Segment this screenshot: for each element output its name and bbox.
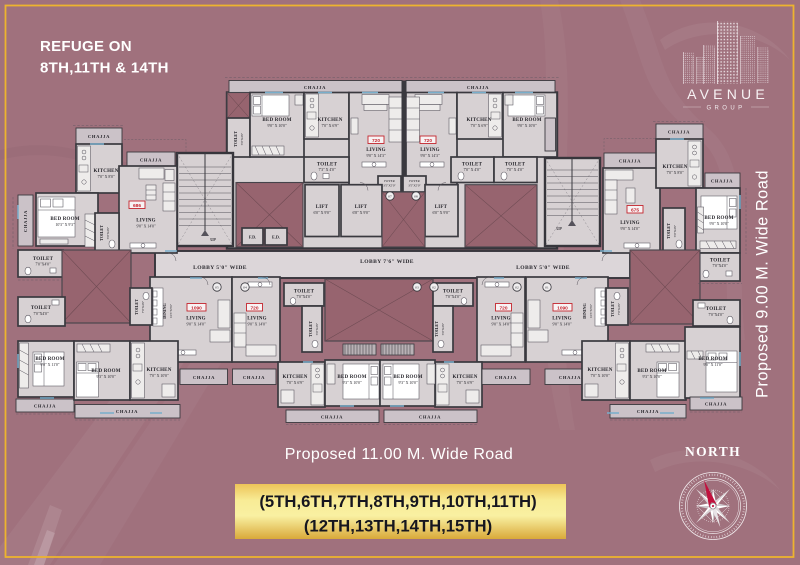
svg-text:LIVING: LIVING [136,219,156,224]
svg-text:9'0" X 14'3": 9'0" X 14'3" [366,154,385,158]
svg-text:7'0"X4'0": 7'0"X4'0" [35,263,51,267]
svg-text:9'0" X 14'0": 9'0" X 14'0" [491,323,510,327]
svg-text:BED ROOM: BED ROOM [512,118,541,123]
svg-text:686: 686 [133,203,141,209]
svg-text:02: 02 [515,285,519,289]
svg-text:TOILET: TOILET [134,299,139,315]
svg-text:01: 01 [545,285,549,289]
svg-text:7'0" X 4'0": 7'0" X 4'0" [506,168,524,172]
svg-text:LOBBY 5'0" WIDE: LOBBY 5'0" WIDE [516,265,570,271]
svg-text:TOILET: TOILET [610,301,615,317]
svg-text:720: 720 [499,306,507,312]
svg-text:NORTH: NORTH [685,444,741,459]
svg-text:TOILET: TOILET [294,290,315,295]
svg-text:7'0" X 8'0": 7'0" X 8'0" [666,171,684,175]
svg-text:BED ROOM: BED ROOM [637,369,666,374]
svg-text:LIVING: LIVING [620,221,640,226]
svg-text:LIVING: LIVING [420,148,440,153]
svg-text:6'0"X4'0": 6'0"X4'0" [441,322,445,335]
svg-text:7'0"X4'0": 7'0"X4'0" [445,295,461,299]
svg-text:CHAJJA: CHAJJA [321,415,343,420]
svg-text:7'0" X 6'9": 7'0" X 6'9" [286,381,304,385]
svg-text:E.D.: E.D. [272,235,280,240]
svg-text:1090: 1090 [191,306,202,312]
svg-text:1090: 1090 [557,306,568,312]
svg-text:BED ROOM: BED ROOM [393,375,422,380]
svg-text:8TH,11TH & 14TH: 8TH,11TH & 14TH [40,60,169,77]
svg-text:F.D.: F.D. [249,235,256,240]
svg-text:CHAJJA: CHAJJA [193,375,215,380]
svg-text:7'0" X 8'0": 7'0" X 8'0" [97,175,115,179]
svg-text:TOILET: TOILET [317,163,338,168]
svg-text:BED ROOM: BED ROOM [337,375,366,380]
svg-text:7'0" X 6'9": 7'0" X 6'9" [321,124,339,128]
svg-text:9'0" X 14'0": 9'0" X 14'0" [552,323,571,327]
svg-text:7'3" X 4'0": 7'3" X 4'0" [318,168,336,172]
svg-text:TOILET: TOILET [505,163,526,168]
svg-text:9'0" X 14'0": 9'0" X 14'0" [247,323,266,327]
svg-text:9'0" X 14'3": 9'0" X 14'3" [420,154,439,158]
svg-text:CHAJJA: CHAJJA [705,402,727,407]
svg-text:10'3"X5'0": 10'3"X5'0" [169,303,173,318]
svg-text:6'0" X 9'0": 6'0" X 9'0" [432,211,450,215]
svg-text:CHAJJA: CHAJJA [559,375,581,380]
svg-text:05: 05 [215,285,219,289]
svg-text:Proposed 9.00 M. Wide Road: Proposed 9.00 M. Wide Road [754,170,772,398]
svg-text:TOILET: TOILET [99,225,104,241]
svg-text:KITCHEN: KITCHEN [662,165,687,170]
svg-text:6'0"X4'0": 6'0"X4'0" [673,224,677,237]
svg-text:3'5"X5'0": 3'5"X5'0" [408,184,421,188]
svg-text:TOILET: TOILET [462,163,483,168]
svg-text:6'0"X4'0": 6'0"X4'0" [106,226,110,239]
svg-text:7'0" X 6'9": 7'0" X 6'9" [470,124,488,128]
svg-text:7'0" X 4'0": 7'0" X 4'0" [463,168,481,172]
svg-text:7'0" X 10'0": 7'0" X 10'0" [149,374,168,378]
svg-text:9'0" X 11'0": 9'0" X 11'0" [704,363,723,367]
svg-text:KITCHEN: KITCHEN [146,368,171,373]
svg-text:LIVING: LIVING [491,317,511,322]
svg-text:BED ROOM: BED ROOM [698,357,727,362]
svg-text:9'0" X 14'0": 9'0" X 14'0" [186,323,205,327]
svg-text:9'0" X 10'0": 9'0" X 10'0" [517,124,536,128]
svg-text:7'0"X4'0": 7'0"X4'0" [617,302,621,315]
svg-text:3'5"X5'0": 3'5"X5'0" [383,184,396,188]
svg-text:03: 03 [415,285,419,289]
svg-text:LOBBY 7'6" WIDE: LOBBY 7'6" WIDE [360,259,414,265]
svg-text:7'0"X4'0": 7'0"X4'0" [712,264,728,268]
svg-text:9'0" X 11'0": 9'0" X 11'0" [41,363,60,367]
svg-text:9'3" X 10'0": 9'3" X 10'0" [96,375,115,379]
svg-text:LIVING: LIVING [366,148,386,153]
svg-text:CHAJJA: CHAJJA [419,415,441,420]
svg-text:9'0" X 10'0": 9'0" X 10'0" [267,124,286,128]
svg-text:TOILET: TOILET [443,290,464,295]
svg-text:LIVING: LIVING [247,317,267,322]
svg-text:CHAJJA: CHAJJA [711,179,733,184]
svg-text:(12TH,13TH,14TH,15TH): (12TH,13TH,14TH,15TH) [304,517,492,536]
svg-text:FOYER: FOYER [384,179,395,183]
svg-text:720: 720 [424,138,432,144]
svg-text:KITCHEN: KITCHEN [282,375,307,380]
svg-text:6'0" X 9'0": 6'0" X 9'0" [313,211,331,215]
svg-text:6'0"X4'0": 6'0"X4'0" [315,322,319,335]
svg-text:02: 02 [432,285,436,289]
svg-text:Proposed 11.00 M. Wide Road: Proposed 11.00 M. Wide Road [285,446,513,463]
svg-text:6'8" X 9'0": 6'8" X 9'0" [352,211,370,215]
svg-text:7'0" X 6'9": 7'0" X 6'9" [456,381,474,385]
svg-text:FOYER: FOYER [409,179,420,183]
svg-text:08: 08 [414,194,418,198]
svg-text:9'3" X 10'0": 9'3" X 10'0" [342,381,361,385]
svg-text:9'0" X 14'0": 9'0" X 14'0" [136,225,155,229]
svg-text:CHAJJA: CHAJJA [140,158,162,163]
svg-text:6'0"X4'0": 6'0"X4'0" [240,132,244,145]
svg-text:BED ROOM: BED ROOM [91,369,120,374]
svg-text:KITCHEN: KITCHEN [93,169,118,174]
svg-text:7'0" X 10'0": 7'0" X 10'0" [590,374,609,378]
svg-text:CHAJJA: CHAJJA [619,159,641,164]
svg-text:720: 720 [250,306,258,312]
svg-text:TOILET: TOILET [666,223,671,239]
svg-text:LIFT: LIFT [435,205,448,210]
svg-text:CHAJJA: CHAJJA [88,134,110,139]
svg-text:BED ROOM: BED ROOM [262,118,291,123]
svg-text:9'0" X 10'0": 9'0" X 10'0" [709,222,728,226]
svg-text:LOBBY 5'0" WIDE: LOBBY 5'0" WIDE [193,265,247,271]
svg-text:10'3"X5'0": 10'3"X5'0" [589,303,593,318]
svg-text:TOILET: TOILET [710,259,731,264]
svg-text:UP: UP [556,226,562,231]
svg-text:CHAJJA: CHAJJA [23,210,28,232]
svg-text:REFUGE ON: REFUGE ON [40,38,132,55]
svg-text:CHAJJA: CHAJJA [467,85,489,90]
svg-text:CHAJJA: CHAJJA [495,375,517,380]
svg-text:675: 675 [631,208,639,214]
svg-text:7'0"X4'0": 7'0"X4'0" [141,300,145,313]
svg-text:GROUP: GROUP [706,106,745,112]
svg-text:TOILET: TOILET [308,321,313,337]
svg-text:9'3" X 10'0": 9'3" X 10'0" [398,381,417,385]
svg-text:720: 720 [372,138,380,144]
svg-text:TOILET: TOILET [233,131,238,147]
svg-text:LIFT: LIFT [355,205,368,210]
svg-text:TOILET: TOILET [706,307,727,312]
svg-text:TOILET: TOILET [33,257,54,262]
svg-text:07: 07 [388,194,392,198]
svg-text:CHAJJA: CHAJJA [34,404,56,409]
svg-text:KITCHEN: KITCHEN [587,368,612,373]
svg-text:KITCHEN: KITCHEN [317,118,342,123]
svg-text:BED ROOM: BED ROOM [50,217,79,222]
svg-text:7'0"X4'0": 7'0"X4'0" [296,295,312,299]
svg-text:CHAJJA: CHAJJA [116,409,138,414]
svg-text:LIVING: LIVING [186,317,206,322]
svg-text:AVENUE: AVENUE [687,86,769,102]
svg-text:CHAJJA: CHAJJA [304,85,326,90]
svg-text:04: 04 [243,285,247,289]
svg-text:7'0"X4'0": 7'0"X4'0" [33,312,49,316]
svg-text:TOILET: TOILET [31,306,52,311]
svg-text:BED ROOM: BED ROOM [704,216,733,221]
svg-text:TOILET: TOILET [434,321,439,337]
svg-text:CHAJJA: CHAJJA [637,409,659,414]
svg-text:9'0" X 14'0": 9'0" X 14'0" [620,227,639,231]
svg-text:9'3" X 10'0": 9'3" X 10'0" [642,375,661,379]
svg-text:10'3" X 9'3": 10'3" X 9'3" [55,223,74,227]
svg-text:KITCHEN: KITCHEN [452,375,477,380]
svg-text:LIVING: LIVING [552,317,572,322]
svg-text:LIFT: LIFT [316,205,329,210]
svg-text:UP: UP [210,237,216,242]
svg-text:CHAJJA: CHAJJA [668,130,690,135]
svg-text:KITCHEN: KITCHEN [466,118,491,123]
svg-text:CHAJJA: CHAJJA [243,375,265,380]
svg-text:(5TH,6TH,7TH,8TH,9TH,10TH,11TH: (5TH,6TH,7TH,8TH,9TH,10TH,11TH) [259,492,536,511]
svg-text:BED ROOM: BED ROOM [35,357,64,362]
svg-text:7'0"X4'0": 7'0"X4'0" [708,313,724,317]
svg-text:DINING: DINING [582,302,587,318]
